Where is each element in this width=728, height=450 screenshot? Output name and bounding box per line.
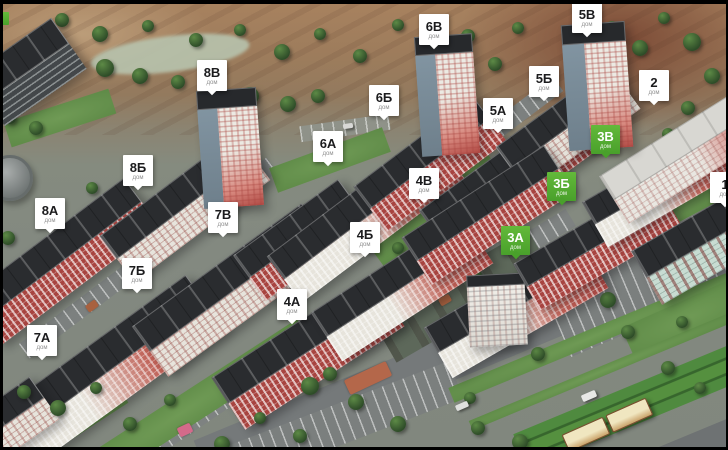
badge-sublabel: дом [539,86,550,92]
tree [512,434,528,450]
tree [531,347,545,361]
badge-label: 3В [597,130,614,143]
badge-label: 2 [650,76,657,89]
badge-sublabel: дом [37,345,48,351]
residential-complex-masterplan: 8Вдом8Бдом8Адом7Вдом7Бдом7Адом6Вдом6Бдом… [0,0,728,450]
tree [683,33,701,51]
badge-building-4Б[interactable]: 4Бдом [350,222,380,253]
tree [694,382,706,394]
badge-building-6В[interactable]: 6Вдом [419,14,449,45]
badge-building-3А[interactable]: 3Адом [501,226,530,255]
tree [132,68,148,84]
tree [392,19,404,31]
badge-building-1[interactable]: 1дом [710,172,728,203]
tree [658,12,670,24]
badge-label: 1 [721,178,728,191]
tree [214,436,230,450]
tree [17,385,31,399]
badge-building-8А[interactable]: 8Адом [35,198,65,229]
tree [55,13,69,27]
tree [171,75,185,89]
badge-label: 7Б [129,264,146,277]
badge-label: 3А [507,231,524,244]
badge-label: 5В [579,8,596,21]
badge-label: 3Б [553,177,570,190]
badge-building-3Б[interactable]: 3Бдом [547,172,576,201]
badge-label: 7В [215,208,232,221]
tree [86,182,98,194]
building-facade [218,106,264,208]
badge-sublabel: дом [493,118,504,124]
badge-sublabel: дом [429,34,440,40]
badge-sublabel: дом [720,192,728,198]
badge-label: 8Б [130,161,147,174]
badge-building-4А[interactable]: 4Адом [277,289,307,320]
tree [189,33,203,47]
badge-building-6А[interactable]: 6Адом [313,131,343,162]
tree [512,22,524,34]
badge-sublabel: дом [379,105,390,111]
badge-label: 4В [416,174,433,187]
badge-fragment [0,12,9,25]
building-body [197,106,264,209]
tree [621,325,635,339]
building-6v[interactable] [414,33,480,157]
badge-building-7В[interactable]: 7Вдом [208,202,238,233]
badge-sublabel: дом [582,22,593,28]
badge-sublabel: дом [649,90,660,96]
badge-label: 5Б [536,72,553,85]
tree [301,377,319,395]
tree [314,28,326,40]
tree [254,412,266,424]
badge-building-2[interactable]: 2дом [639,70,669,101]
building-facade [435,52,480,155]
tree [348,394,364,410]
badge-sublabel: дом [132,278,143,284]
building-8v[interactable] [196,87,264,209]
tree [29,121,43,135]
building-body [415,52,480,157]
tree [50,400,66,416]
badge-building-4В[interactable]: 4Вдом [409,168,439,199]
badge-building-6Б[interactable]: 6Бдом [369,85,399,116]
tree [293,429,307,443]
badge-building-8В[interactable]: 8Вдом [197,60,227,91]
tree [274,44,290,60]
tree [90,382,102,394]
badge-sublabel: дом [287,309,298,315]
badge-sublabel: дом [419,188,430,194]
badge-label: 8В [204,66,221,79]
badge-sublabel: дом [45,218,56,224]
tree [488,57,502,71]
building-3a-t[interactable] [466,273,528,348]
building-facade [467,284,528,347]
tree [92,26,108,42]
tree [661,361,675,375]
tree [600,292,616,308]
badge-building-7А[interactable]: 7Адом [27,325,57,356]
badge-building-7Б[interactable]: 7Бдом [122,258,152,289]
tree [280,96,296,112]
tree [164,394,176,406]
badge-sublabel: дом [218,222,229,228]
badge-sublabel: дом [360,242,371,248]
tree [323,367,337,381]
tree [353,49,367,63]
badge-building-8Б[interactable]: 8Бдом [123,155,153,186]
badge-label: 6В [426,20,443,33]
tree [311,89,325,103]
tree [123,417,137,431]
tree [704,68,720,84]
badge-label: 6Б [376,91,393,104]
badge-sublabel: дом [133,175,144,181]
badge-sublabel: дом [323,151,334,157]
badge-building-5В[interactable]: 5Вдом [572,2,602,33]
badge-building-5А[interactable]: 5Адом [483,98,513,129]
badge-label: 8А [42,204,59,217]
tree [632,40,648,56]
badge-building-3В[interactable]: 3Вдом [591,125,620,154]
tree [390,416,406,432]
badge-label: 7А [34,331,51,344]
badge-label: 4А [284,295,301,308]
tree [142,20,154,32]
badge-building-5Б[interactable]: 5Бдом [529,66,559,97]
tree [676,316,688,328]
badge-label: 4Б [357,228,374,241]
tree [1,231,15,245]
badge-label: 6А [320,137,337,150]
badge-sublabel: дом [207,80,218,86]
tree [471,421,485,435]
badge-label: 5А [490,104,507,117]
tree [96,59,114,77]
tree [681,101,695,115]
tree [234,24,246,36]
